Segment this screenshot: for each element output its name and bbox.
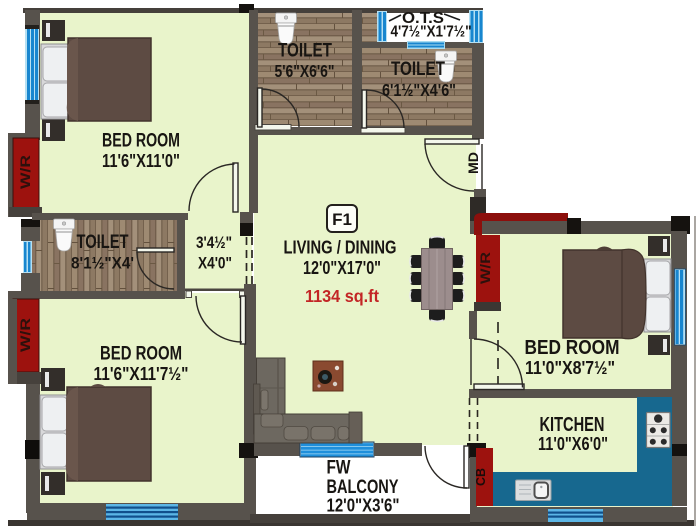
svg-text:11'6"X11'7½": 11'6"X11'7½" <box>94 364 189 384</box>
svg-text:BED ROOM: BED ROOM <box>100 343 182 365</box>
svg-text:BED ROOM: BED ROOM <box>102 131 180 152</box>
svg-text:KITCHEN: KITCHEN <box>540 414 605 436</box>
svg-text:CB: CB <box>474 468 488 486</box>
svg-text:TOILET: TOILET <box>278 41 332 62</box>
svg-text:11'0"X6'0": 11'0"X6'0" <box>538 434 608 454</box>
svg-text:5'6"X6'6": 5'6"X6'6" <box>275 61 335 81</box>
svg-text:TOILET: TOILET <box>77 232 129 253</box>
svg-text:W/R: W/R <box>17 318 33 352</box>
svg-text:W/R: W/R <box>477 252 493 284</box>
svg-text:1134 sq.ft: 1134 sq.ft <box>305 286 379 306</box>
svg-text:11'0"X8'7½": 11'0"X8'7½" <box>525 358 615 378</box>
svg-text:8'1½"X4': 8'1½"X4' <box>71 254 134 273</box>
svg-text:MD: MD <box>465 152 481 174</box>
svg-text:TOILET: TOILET <box>391 59 445 80</box>
svg-text:X4'0": X4'0" <box>198 254 232 273</box>
svg-text:W/R: W/R <box>17 155 33 189</box>
svg-text:F1: F1 <box>332 210 352 229</box>
svg-text:6'1½"X4'6": 6'1½"X4'6" <box>382 80 456 100</box>
svg-text:3'4½": 3'4½" <box>196 233 232 252</box>
svg-text:4'7½"X1'7½": 4'7½"X1'7½" <box>391 24 472 41</box>
svg-text:BED ROOM: BED ROOM <box>525 337 620 359</box>
svg-text:LIVING / DINING: LIVING / DINING <box>284 238 397 258</box>
svg-text:12'0"X17'0": 12'0"X17'0" <box>303 258 381 278</box>
svg-text:12'0"X3'6": 12'0"X3'6" <box>327 496 400 516</box>
svg-text:11'6"X11'0": 11'6"X11'0" <box>102 151 180 171</box>
svg-text:FW: FW <box>327 458 351 479</box>
